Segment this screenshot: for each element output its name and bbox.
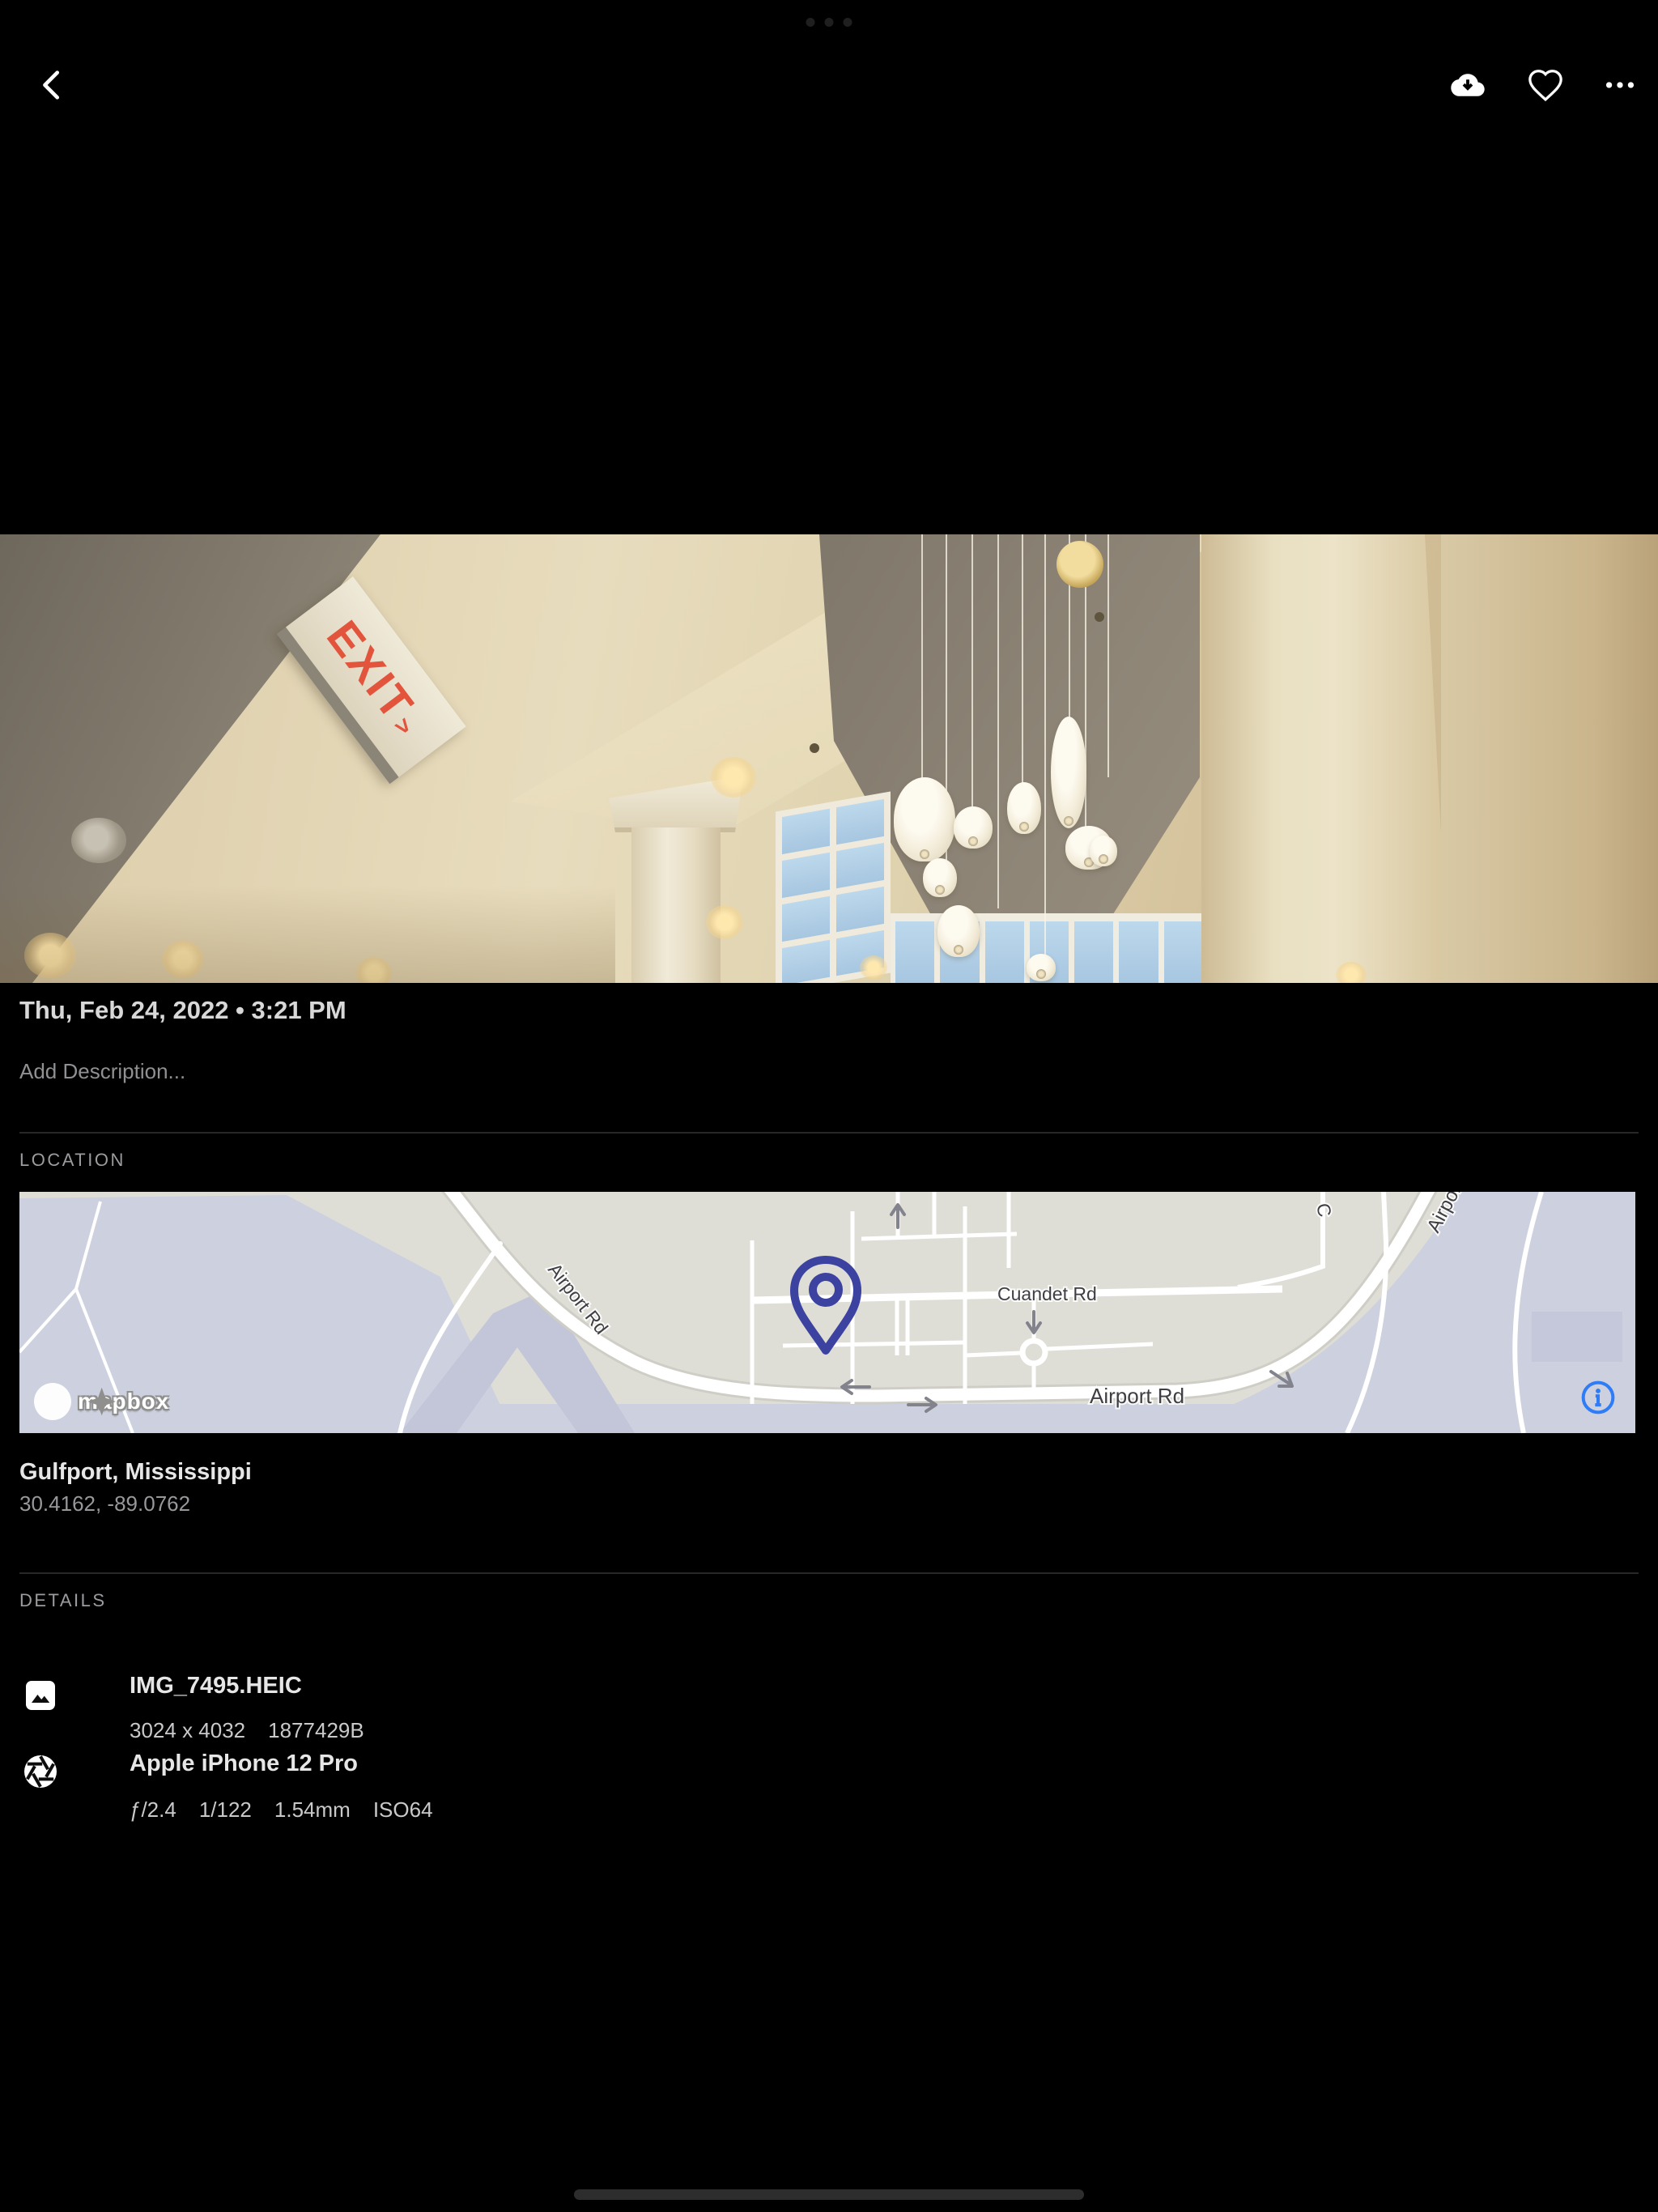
- lamp-wire: [921, 534, 923, 781]
- lamp-wire: [971, 534, 973, 810]
- image-file-icon: [21, 1676, 60, 1715]
- road-label: Cuandet Rd: [997, 1283, 1097, 1304]
- photo-viewer[interactable]: EXIT >: [0, 534, 1658, 983]
- pendant-lamp: [954, 806, 993, 849]
- file-dimensions: 3024 x 4032: [130, 1718, 245, 1742]
- mapbox-attribution[interactable]: mapbox: [34, 1383, 169, 1420]
- pendant-lamp: [894, 777, 955, 861]
- file-name: IMG_7495.HEIC: [130, 1673, 302, 1699]
- pendant-lamp: [1007, 782, 1041, 834]
- recessed-light: [860, 955, 887, 980]
- download-button[interactable]: [1444, 62, 1491, 108]
- map-info-button[interactable]: [1580, 1380, 1616, 1415]
- camera-aperture: ƒ/2.4: [130, 1797, 176, 1822]
- clerestory-window-left: [776, 791, 891, 983]
- map-lavender-strip: [19, 1404, 1635, 1433]
- pendant-lamp: [1090, 836, 1117, 866]
- recessed-light: [711, 757, 756, 798]
- photo-date: Thu, Feb 24, 2022 • 3:21 PM: [19, 996, 346, 1025]
- ellipsis-icon: [1601, 66, 1639, 104]
- place-name: Gulfport, Mississippi: [19, 1459, 252, 1486]
- lamp-wire: [1022, 534, 1023, 785]
- lamp-wire: [1107, 534, 1109, 777]
- aperture-icon: [21, 1752, 60, 1791]
- photo-detail-screen: EXIT >: [0, 0, 1658, 2212]
- location-map[interactable]: Airport Rd Cuandet Rd Airport Rd Airport…: [19, 1192, 1635, 1433]
- shadow-overlay: [0, 886, 615, 983]
- file-size: 1877429B: [268, 1718, 364, 1742]
- lamp-wire: [997, 534, 999, 908]
- sprinkler-head: [810, 743, 819, 753]
- smoke-detector: [71, 818, 126, 863]
- column-shaft: [631, 827, 721, 983]
- location-section-label: LOCATION: [19, 1150, 125, 1171]
- camera-name: Apple iPhone 12 Pro: [130, 1750, 358, 1777]
- more-options-button[interactable]: [1596, 62, 1643, 108]
- camera-settings: ƒ/2.41/1221.54mmISO64: [130, 1797, 456, 1823]
- mapbox-logo-icon: [34, 1383, 71, 1420]
- lamp-wire: [1044, 534, 1046, 955]
- camera-iso: ISO64: [373, 1797, 433, 1822]
- camera-focal-length: 1.54mm: [274, 1797, 351, 1822]
- divider: [19, 1132, 1639, 1134]
- home-indicator[interactable]: [574, 2189, 1084, 2200]
- pendant-lamp: [923, 858, 957, 897]
- pendant-lamp: [937, 905, 980, 957]
- multitask-indicator-icon: [806, 18, 852, 27]
- details-section-label: DETAILS: [19, 1590, 107, 1611]
- map-canvas: Airport Rd Cuandet Rd Airport Rd Airport…: [19, 1192, 1635, 1433]
- back-button[interactable]: [29, 62, 76, 108]
- camera-shutter: 1/122: [199, 1797, 252, 1822]
- recessed-light: [706, 905, 743, 939]
- right-wall: [1441, 534, 1658, 983]
- gold-ceiling-light: [1056, 541, 1103, 588]
- pendant-lamp: [1051, 717, 1086, 828]
- coordinates: 30.4162, -89.0762: [19, 1491, 190, 1516]
- sprinkler-head: [1095, 612, 1104, 622]
- recessed-light: [1336, 962, 1367, 983]
- favorite-button[interactable]: [1522, 62, 1569, 108]
- large-column: [1201, 534, 1444, 983]
- divider: [19, 1572, 1639, 1574]
- file-meta: 3024 x 40321877429B: [130, 1718, 387, 1743]
- pendant-lamp: [1027, 954, 1056, 981]
- cloud-download-icon: [1449, 66, 1486, 104]
- chevron-left-icon: [34, 66, 71, 104]
- heart-icon: [1527, 66, 1564, 104]
- map-building-block: [1532, 1312, 1622, 1362]
- description-input[interactable]: Add Description...: [19, 1059, 185, 1084]
- road-label: Airport Rd: [1090, 1384, 1184, 1408]
